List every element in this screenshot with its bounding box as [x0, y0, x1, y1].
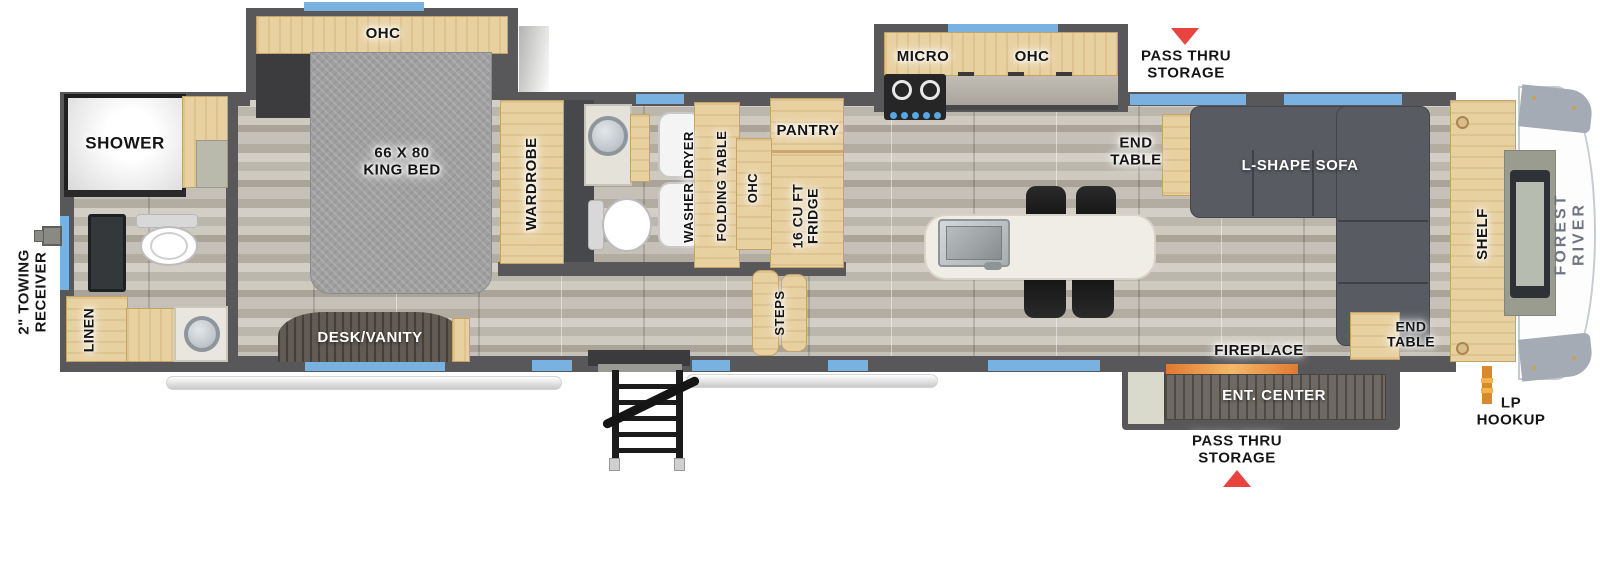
bedroom-ohc-label: OHC: [366, 26, 401, 43]
laundry-ohc-label: OHC: [746, 173, 760, 203]
linen-label: LINEN: [81, 308, 96, 353]
entry-steps-foot: [674, 458, 685, 471]
stove-flame-row: [890, 112, 942, 119]
entry-steps-foot: [609, 458, 620, 471]
island-sink-basin: [946, 226, 1002, 260]
flame-icon: [923, 112, 930, 119]
flame-icon: [934, 112, 941, 119]
ent-center-label: ENT. CENTER: [1222, 388, 1326, 405]
shower-label: SHOWER: [85, 135, 165, 154]
entry-steps-rung: [612, 448, 683, 453]
window: [636, 94, 684, 104]
cabinet-handle: [1056, 72, 1072, 76]
washer-dryer-label: WASHER DRYER: [682, 131, 696, 243]
kitchen-ohc-label: OHC: [1015, 49, 1050, 66]
stove-burner: [920, 80, 940, 100]
end-table-top: [1162, 114, 1192, 196]
awning-roll-right: [686, 374, 938, 388]
cap-screw: [1532, 366, 1536, 370]
stove-burner: [892, 80, 912, 100]
folding-table-label: FOLDING TABLE: [715, 131, 729, 242]
bath-sink: [184, 316, 220, 352]
flame-icon: [890, 112, 897, 119]
flame-icon: [901, 112, 908, 119]
entry-steps-rung: [612, 432, 683, 437]
window: [1130, 94, 1246, 105]
towing-receiver-label: 2" TOWING RECEIVER: [17, 249, 50, 335]
island-faucet: [984, 262, 1002, 270]
pass-thru-bottom-label: PASS THRU STORAGE: [1192, 434, 1282, 467]
linen-cabinet: [66, 296, 128, 362]
forest-river-brand: FOREST RIVER: [1552, 193, 1587, 276]
pass-thru-top-label: PASS THRU STORAGE: [1141, 49, 1231, 82]
sofa-seam: [1338, 282, 1428, 284]
shelf-label: SHELF: [1475, 208, 1492, 260]
l-sofa-chaise-section: [1336, 106, 1430, 346]
lp-hookup-label: LP HOOKUP: [1477, 396, 1546, 429]
sofa-seam: [1338, 220, 1428, 222]
window: [692, 360, 730, 371]
midbath-drawers: [630, 114, 650, 182]
ent-slideout-endcap: [1128, 366, 1164, 424]
end-table-top-label: END TABLE: [1110, 136, 1161, 169]
shelf-speaker: [1456, 116, 1469, 129]
pantry-label: PANTRY: [777, 123, 840, 140]
front-tv-screen: [1516, 182, 1544, 286]
rear-toilet-seat: [150, 232, 188, 260]
steps-label: STEPS: [773, 290, 787, 335]
midbath-toilet-bowl: [602, 198, 652, 252]
hitch-receiver-tip: [34, 230, 44, 242]
lp-pipe-coupling: [1481, 378, 1493, 383]
bedroom-window: [304, 2, 424, 11]
flame-icon: [912, 112, 919, 119]
window: [828, 360, 868, 371]
entry-threshold: [598, 364, 682, 372]
desk-side-panel: [452, 318, 470, 362]
fireplace-label: FIREPLACE: [1214, 343, 1304, 360]
cap-screw: [1572, 106, 1576, 110]
cabinet-handle: [958, 72, 974, 76]
window: [532, 360, 572, 371]
kitchen-window: [948, 24, 1058, 32]
awning-roll-left: [166, 376, 562, 390]
end-table-bottom-label: END TABLE: [1387, 320, 1435, 351]
bedroom-headboard: [256, 54, 314, 118]
bath-counter: [126, 308, 176, 362]
bedroom-slideout-shadow: [519, 26, 549, 102]
desk-vanity-label: DESK/VANITY: [317, 330, 422, 347]
fridge-label: 16 CU FT FRIDGE: [791, 184, 822, 249]
cap-screw: [1572, 356, 1576, 360]
pantry-fridge-seam: [771, 150, 843, 153]
window: [1284, 94, 1402, 105]
bath-tv: [88, 214, 126, 292]
shelf-speaker: [1456, 342, 1469, 355]
king-bed-label: 66 X 80 KING BED: [363, 146, 440, 179]
front-cap-corner-bottom: [1518, 332, 1594, 381]
window: [988, 360, 1100, 371]
midbath-sink: [588, 116, 628, 156]
l-shape-sofa-label: L-SHAPE SOFA: [1242, 158, 1359, 175]
front-cap-corner-top: [1518, 84, 1594, 133]
pass-thru-arrow-up-icon: [1223, 470, 1251, 487]
bath-vanity-front: [196, 140, 228, 188]
shower-door: [64, 190, 186, 197]
hitch-receiver: [42, 226, 62, 246]
micro-label: MICRO: [897, 49, 950, 66]
rv-floorplan: 2" TOWING RECEIVER SHOWER LINEN OHC 66 X…: [0, 0, 1600, 568]
lp-pipe-coupling: [1481, 388, 1493, 393]
cap-screw: [1532, 96, 1536, 100]
cabinet-handle: [1008, 72, 1024, 76]
wardrobe-label: WARDROBE: [524, 137, 541, 230]
pass-thru-arrow-down-icon: [1171, 28, 1199, 45]
